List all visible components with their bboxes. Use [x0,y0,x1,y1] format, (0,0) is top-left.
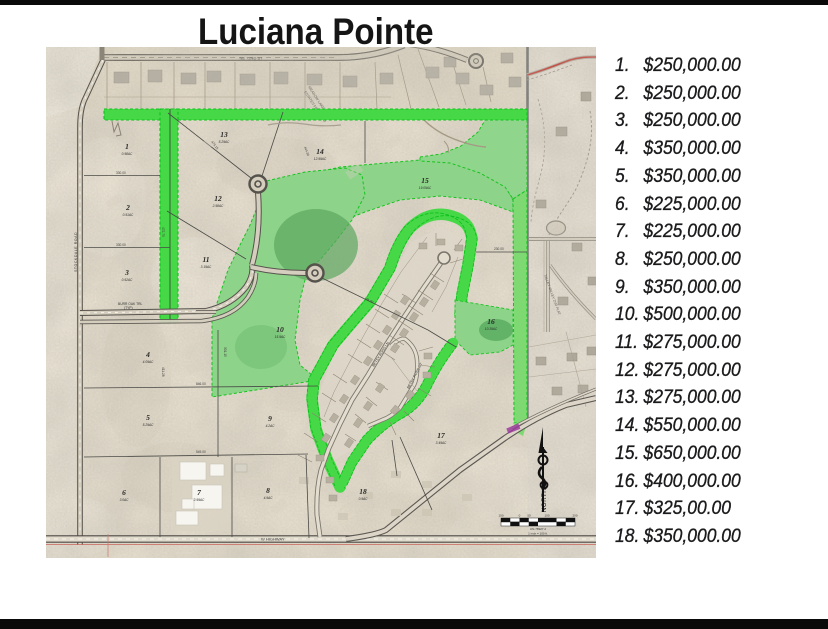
svg-text:3: 3 [124,268,129,277]
svg-text:330.00: 330.00 [116,243,126,247]
svg-text:14: 14 [316,147,324,156]
svg-text:16: 16 [487,317,495,326]
svg-text:6: 6 [122,488,126,497]
svg-text:100: 100 [498,514,503,518]
svg-text:0.9AC: 0.9AC [359,497,369,501]
svg-text:9: 9 [268,414,272,423]
svg-text:3.49AC: 3.49AC [436,441,447,445]
svg-text:301.15: 301.15 [223,347,227,357]
svg-text:100: 100 [544,514,549,518]
svg-text:5.29AC: 5.29AC [143,423,154,427]
svg-text:2.99AC: 2.99AC [193,498,205,502]
svg-text:0.91AC: 0.91AC [123,213,134,217]
svg-text:13: 13 [220,130,228,139]
svg-text:12.99AC: 12.99AC [314,157,327,161]
svg-text:NORTH: NORTH [542,488,548,512]
svg-text:STOCKDALE ROAD: STOCKDALE ROAD [74,232,78,272]
svg-text:W HIGHWAY: W HIGHWAY [261,537,285,542]
svg-text:4.9AC: 4.9AC [264,496,274,500]
svg-text:2.98AC: 2.98AC [212,204,224,208]
svg-text:1: 1 [125,142,129,151]
svg-text:5: 5 [146,413,150,422]
svg-text:18: 18 [359,487,367,496]
svg-text:846.00: 846.00 [196,382,206,386]
svg-text:5.29AC: 5.29AC [219,140,230,144]
svg-text:3.0AC: 3.0AC [120,498,130,502]
svg-text:4.2AC: 4.2AC [266,424,276,428]
svg-text:230.00: 230.00 [494,247,504,251]
svg-text:15.9AC: 15.9AC [275,335,286,339]
svg-text:2: 2 [125,203,130,212]
svg-text:12: 12 [214,194,222,203]
svg-text:15: 15 [421,176,429,185]
svg-text:10.39AC: 10.39AC [485,327,498,331]
svg-text:8: 8 [266,486,270,495]
svg-text:7: 7 [197,488,201,497]
svg-text:10: 10 [276,325,284,334]
svg-text:4: 4 [145,350,150,359]
svg-text:3.19AC: 3.19AC [201,265,212,269]
svg-text:17: 17 [437,431,445,440]
svg-text:200: 200 [572,514,577,518]
svg-text:549.00: 549.00 [196,450,206,454]
svg-text:330.00: 330.00 [116,171,126,175]
svg-text:1 inch = 100 ft.: 1 inch = 100 ft. [528,532,548,536]
svg-text:UN-78927.2: UN-78927.2 [530,527,547,531]
svg-text:(TYP): (TYP) [124,306,133,310]
svg-text:0.92AC: 0.92AC [122,278,133,282]
svg-text:411.28: 411.28 [161,367,165,377]
svg-text:50: 50 [527,514,531,518]
svg-text:4.09AC: 4.09AC [143,360,154,364]
svg-text:472.70: 472.70 [161,227,165,237]
svg-text:0.98AC: 0.98AC [122,152,133,156]
svg-text:19.09AC: 19.09AC [419,186,432,190]
svg-text:11: 11 [202,255,209,264]
